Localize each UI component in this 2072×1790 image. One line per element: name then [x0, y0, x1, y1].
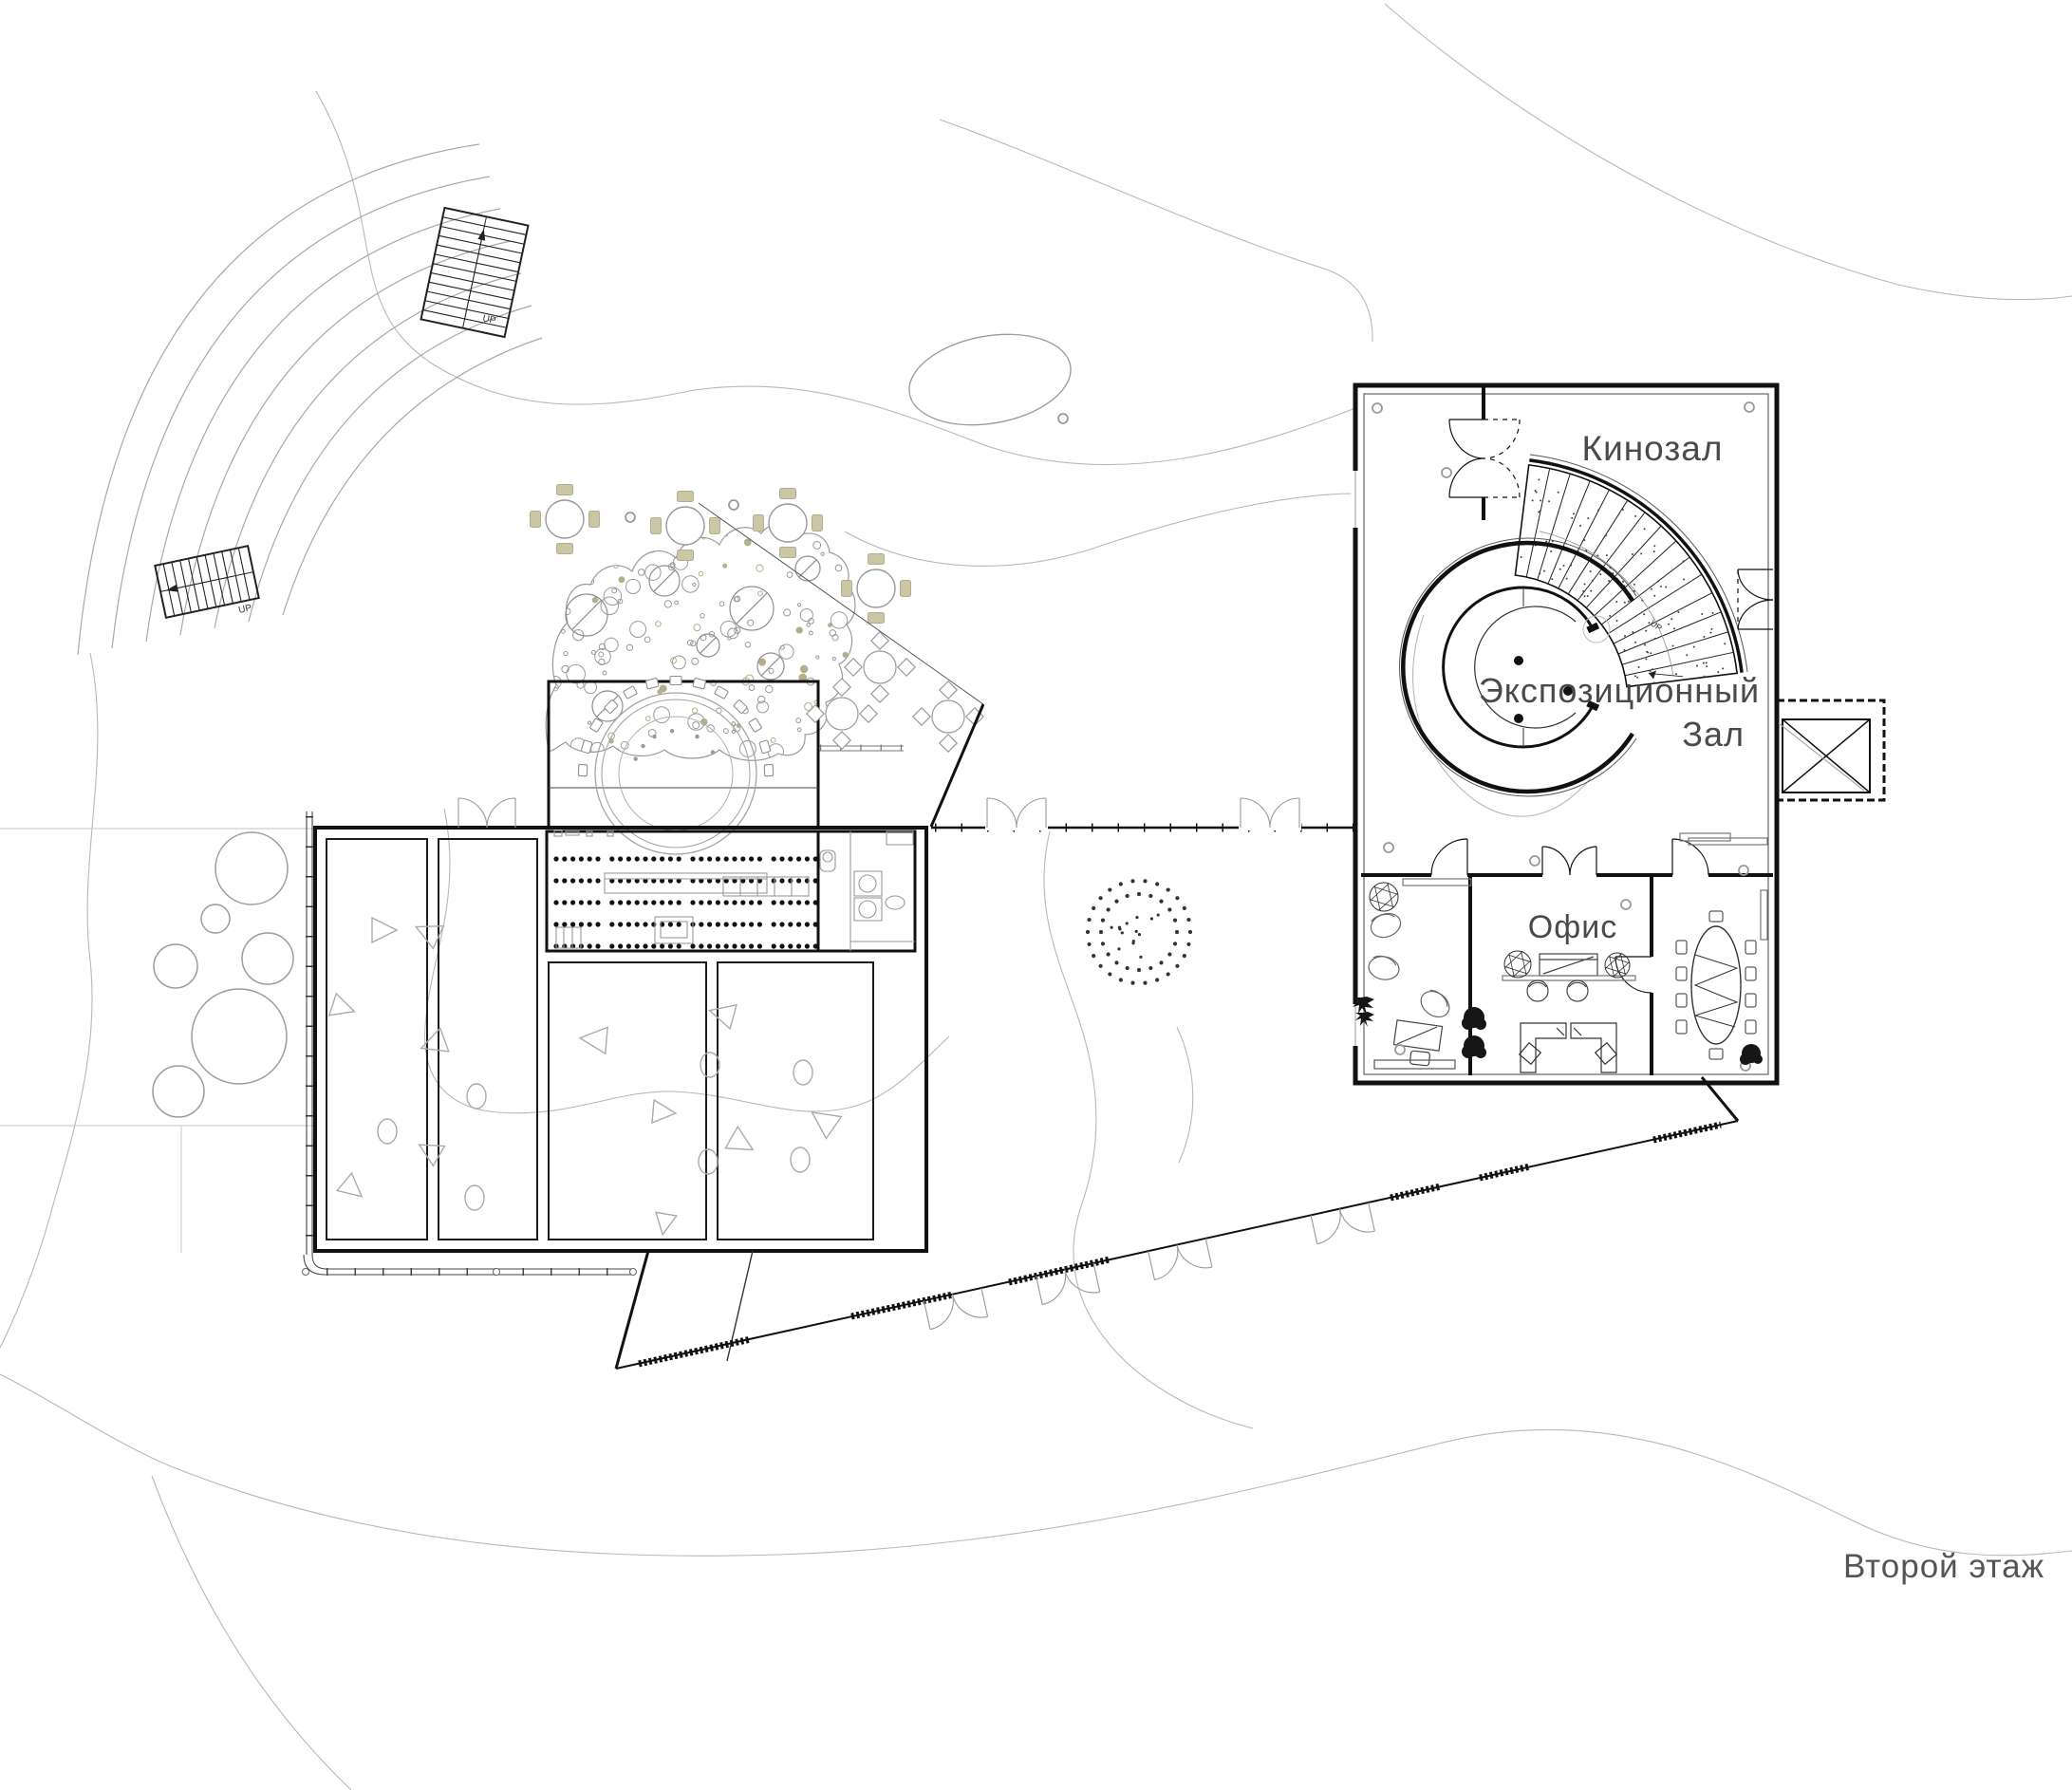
- pond: [902, 323, 1077, 437]
- contour-mid: [845, 494, 1355, 566]
- office-rooms: [1361, 839, 1773, 1075]
- round-table: [842, 554, 911, 624]
- cafe-tables: [531, 485, 984, 753]
- label-exhibition-line2: Зал: [1682, 715, 1745, 754]
- kitchen: [818, 831, 915, 951]
- contour-top-right: [1385, 4, 2072, 300]
- label-cinema: Кинозал: [1582, 429, 1724, 468]
- auditorium: [547, 830, 818, 951]
- right-building: [1351, 385, 1884, 1083]
- contour-through-building: [425, 809, 949, 1113]
- auditorium-seating: [553, 856, 817, 948]
- roof-planting-symbols: [329, 916, 842, 1237]
- diamond-table: [913, 681, 983, 752]
- round-table: [754, 489, 823, 558]
- cinema-door-east: [1738, 569, 1773, 629]
- double-door-west: [985, 798, 1048, 830]
- double-door-east: [1239, 798, 1301, 830]
- contour-bottom-left: [152, 1476, 351, 1790]
- left-building: [315, 828, 926, 1251]
- elevator-shaft: [1777, 700, 1884, 800]
- diamond-table: [845, 632, 915, 702]
- geo-plant: [1504, 951, 1531, 978]
- dotted-canopy-tree: [1086, 879, 1192, 984]
- geo-plant: [1370, 883, 1398, 911]
- round-table: [531, 485, 600, 554]
- auditorium-furniture: [554, 830, 809, 948]
- deck-doors: [924, 1203, 1374, 1330]
- label-office: Офис: [1528, 909, 1617, 945]
- cinema-door-top: [1449, 385, 1520, 520]
- contour-top-left: [316, 91, 1355, 465]
- contour-deck-s2: [1177, 1027, 1193, 1163]
- terrace-arcs: [78, 144, 542, 655]
- office-furniture: [1367, 833, 1767, 1072]
- contour-bottom: [0, 1374, 2072, 1556]
- lounge-chairs: [1367, 909, 1454, 1022]
- glass-wall: [931, 798, 1353, 830]
- street-trees: [153, 832, 293, 1117]
- contour-deck-s: [1044, 831, 1253, 1428]
- roof-strips: [327, 839, 873, 1240]
- courtyard-door: [458, 798, 515, 828]
- terrace-stair-upper: [421, 208, 529, 337]
- floor-plan-page: UP UP: [0, 0, 2072, 1790]
- reception-desk: [1393, 1020, 1442, 1066]
- perimeter-railing: [303, 746, 905, 1276]
- floor-plan-svg: UP UP: [0, 0, 2072, 1790]
- label-floor-title: Второй этаж: [1843, 1548, 2044, 1585]
- cinema-fan-stair: [1515, 455, 1747, 687]
- contour-left: [0, 653, 98, 1348]
- round-table: [651, 492, 720, 561]
- stair-up-label-upper: UP: [481, 313, 496, 326]
- label-exhibition-line1: Экспозиционный: [1479, 671, 1760, 710]
- office-desks: [1520, 1023, 1617, 1072]
- contour-upper-mid: [940, 120, 1372, 342]
- conference-table: [1676, 911, 1756, 1059]
